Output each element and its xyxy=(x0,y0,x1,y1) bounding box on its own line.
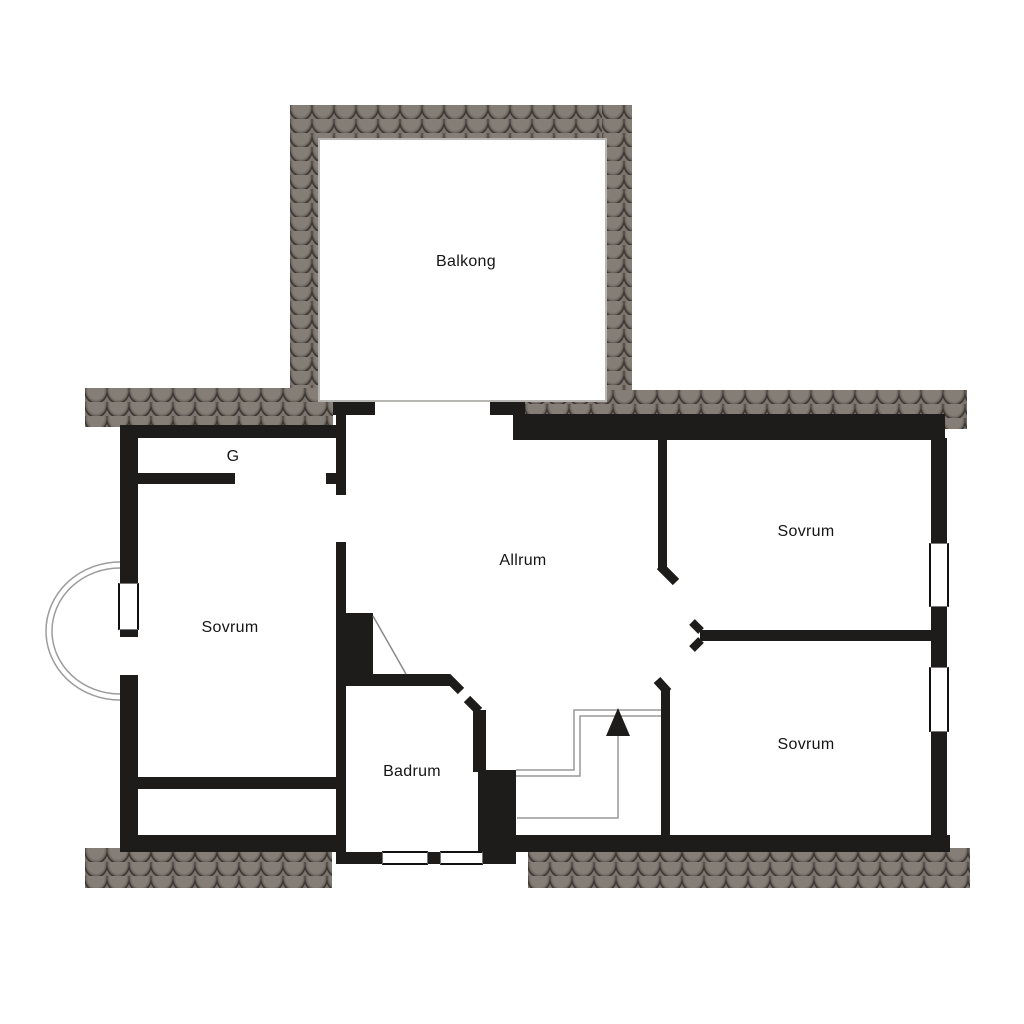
stair-direction-arrow xyxy=(606,708,630,736)
room-label-sovrum-left: Sovrum xyxy=(202,619,259,637)
wall-sovrum-right-divider xyxy=(700,630,932,641)
wall-badrum-bottom-2 xyxy=(428,852,440,864)
wall-left-lower xyxy=(120,675,138,852)
wall-badrum-right xyxy=(473,710,486,772)
door-swing-line xyxy=(373,616,406,674)
wall-left-upper xyxy=(120,425,138,583)
door-tick-divider-lower xyxy=(692,640,701,649)
window-right-upper xyxy=(929,543,949,607)
room-label-sovrum-top-right: Sovrum xyxy=(778,523,835,541)
wall-stairwell-right xyxy=(661,690,670,837)
wall-badrum-top xyxy=(345,674,450,686)
wall-badrum-bottom-1 xyxy=(340,852,382,864)
wall-right-lower xyxy=(931,732,947,837)
room-label-balkong: Balkong xyxy=(436,253,496,271)
wall-bottom-right-ext xyxy=(480,835,950,852)
wall-top-left-band xyxy=(120,425,345,438)
balcony-shingle-top xyxy=(290,105,632,140)
window-right-lower xyxy=(929,667,949,732)
room-label-closet: G xyxy=(227,448,240,466)
wall-sovrum-left-bottom xyxy=(128,777,343,789)
roof-strip-bottom-right xyxy=(528,848,970,888)
wall-divider-left-upper xyxy=(336,415,346,495)
roof-strip-bottom-left xyxy=(85,848,332,888)
room-label-badrum: Badrum xyxy=(383,763,441,781)
wall-stair-slab xyxy=(478,770,516,864)
roof-strip-top-left xyxy=(85,388,333,427)
floor-plan: Balkong G Sovrum Allrum Sovrum Sovrum Ba… xyxy=(0,0,1024,1024)
wall-right-upper xyxy=(931,438,947,543)
wall-top-right-band xyxy=(513,414,945,440)
entry-arc-inner xyxy=(52,568,120,694)
wall-allrum-divider xyxy=(658,438,667,568)
wall-right-middle xyxy=(931,607,947,667)
stair-outline-1 xyxy=(516,716,661,776)
door-tick-allrum xyxy=(660,566,676,582)
wall-divider-left-lower xyxy=(336,542,346,864)
window-bottom-1 xyxy=(382,851,428,865)
fireplace xyxy=(343,613,373,680)
entry-arc-outer xyxy=(46,562,120,700)
stair-walk-line xyxy=(517,734,618,818)
window-left xyxy=(118,583,139,630)
room-label-sovrum-bottom-right: Sovrum xyxy=(778,736,835,754)
stair-outline-2 xyxy=(516,710,661,770)
window-bottom-2 xyxy=(440,851,483,865)
room-label-allrum: Allrum xyxy=(499,552,546,570)
wall-balcony-door-left-stub xyxy=(333,402,375,415)
wall-bottom-left-ext xyxy=(120,835,345,852)
wall-left-stub xyxy=(120,630,138,637)
wall-closet-bottom xyxy=(132,473,235,484)
balcony-shingle-left xyxy=(290,105,320,427)
